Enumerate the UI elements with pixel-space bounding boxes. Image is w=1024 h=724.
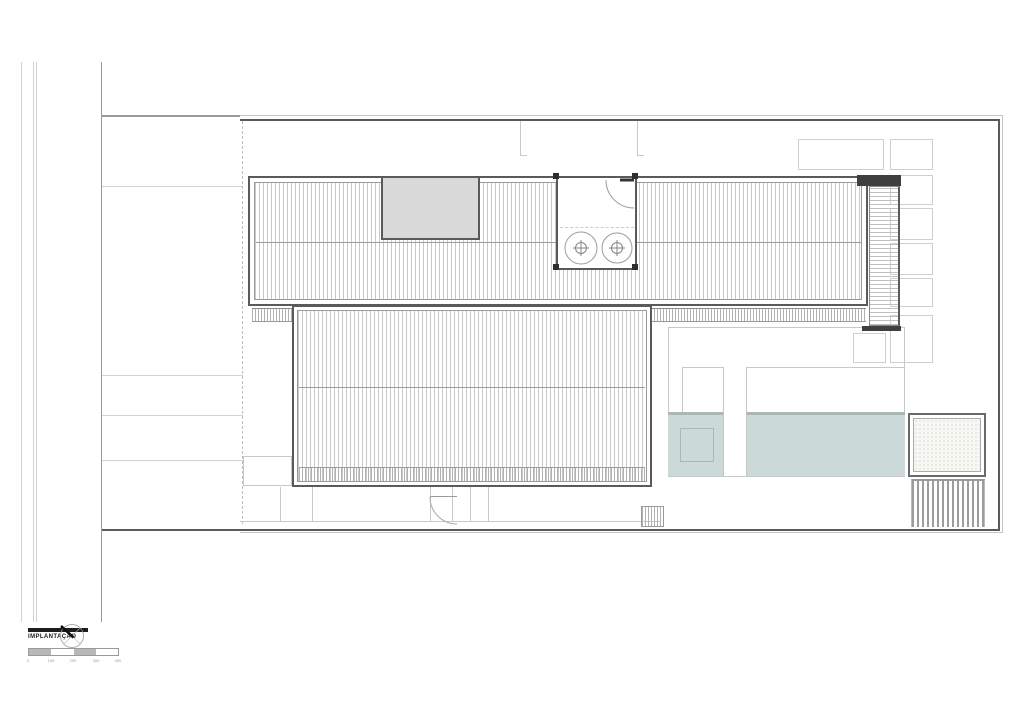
paving-slab	[798, 139, 884, 170]
street-line	[21, 62, 22, 622]
sidewalk-joint	[102, 375, 243, 376]
scale-tick-label: 100	[48, 658, 55, 663]
roof-lower-hatch	[297, 310, 647, 482]
plot-boundary-bottom	[240, 529, 1000, 531]
skylight-courtyard	[381, 176, 480, 240]
scale-tick-label: 400	[115, 658, 122, 663]
scale-bar-segment	[74, 649, 96, 655]
sidewalk-edge	[102, 529, 240, 531]
wall-stub	[637, 121, 638, 156]
sidewalk-joint	[102, 460, 243, 461]
street-line	[36, 62, 37, 622]
scale-bar-segment	[96, 649, 118, 655]
plot-boundary-offset	[1002, 115, 1003, 533]
pool-bridge	[723, 367, 747, 476]
wall-stub	[520, 155, 527, 156]
walkway-joint	[470, 487, 471, 521]
wood-deck	[911, 479, 985, 527]
sidewalk-joint	[102, 415, 243, 416]
walkway-joint	[488, 487, 489, 521]
walkway-joint	[312, 487, 313, 521]
spa-square	[680, 428, 714, 462]
curb-line	[101, 62, 102, 622]
grate	[641, 506, 664, 527]
scale-tick-label: 300	[93, 658, 100, 663]
paving-slab	[890, 139, 933, 170]
wall-stub	[520, 121, 521, 156]
plot-boundary-top	[240, 119, 1000, 121]
scale-bar-segment	[29, 649, 51, 655]
pool-water-right	[747, 415, 905, 476]
sidewalk-edge	[102, 115, 240, 117]
wall-segment	[857, 175, 901, 186]
wall-segment	[862, 326, 901, 331]
plot-boundary-offset	[240, 115, 1003, 116]
scale-bar	[28, 648, 119, 656]
side-bay	[243, 456, 292, 486]
garage-door-arc	[428, 495, 460, 527]
scale-bar-segment	[51, 649, 73, 655]
roof-lower-fascia	[299, 467, 645, 481]
walkway-joint	[280, 487, 281, 521]
pool-patio-outline	[682, 367, 905, 413]
wall-stub	[637, 155, 644, 156]
plot-boundary-right	[998, 119, 1000, 531]
plot-boundary-offset	[240, 532, 1003, 533]
roof-lower-ridge	[299, 387, 645, 388]
site-plan-drawing: IMPLANTAÇÃO 0 100 200 300 400	[0, 0, 1024, 724]
sidewalk-joint	[102, 186, 243, 187]
street-line	[33, 62, 34, 622]
tree-icon	[556, 176, 656, 276]
scale-tick-label: 0	[27, 658, 29, 663]
scale-tick-label: 200	[70, 658, 77, 663]
pergola-strip	[869, 186, 900, 326]
sand-patio-texture	[913, 418, 981, 472]
